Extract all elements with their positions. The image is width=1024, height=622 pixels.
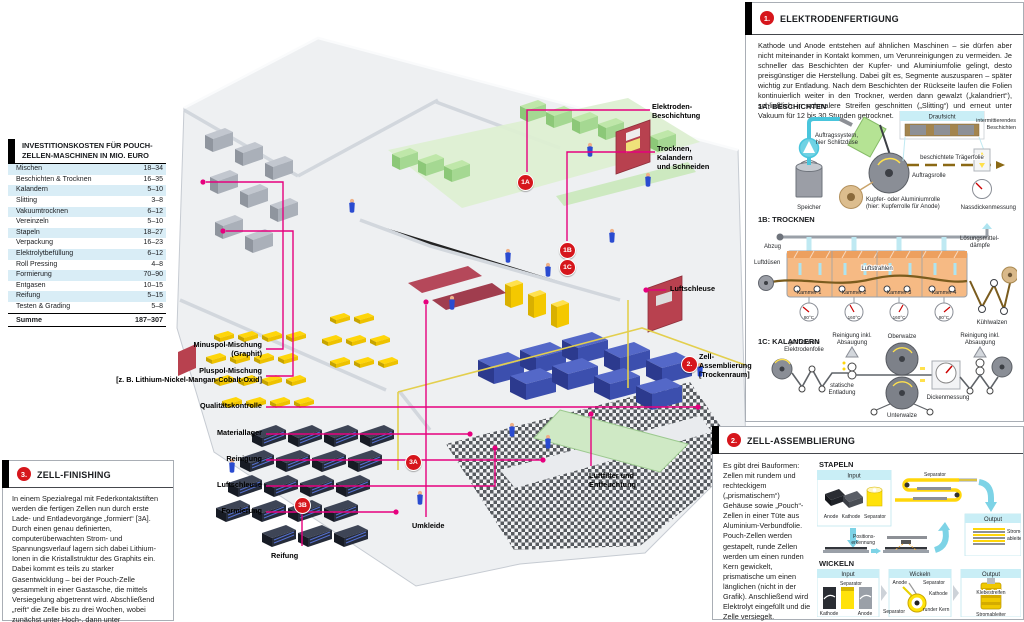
label-wickeln-separator-2: Separator [883, 609, 905, 615]
panel3-title: ZELL-FINISHING [37, 470, 111, 480]
label-reinigung-links-2: Absaugung [837, 340, 867, 346]
diagram-beschichten: Draufsicht intermittierendes Beschichten… [752, 111, 1017, 213]
label-wickeln-separator-1: Separator [923, 580, 945, 586]
label-temp-2: 160°C [848, 315, 862, 320]
label-nassdickenmessung: Nassdickenmessung [961, 205, 1016, 211]
label-positionserkennung-2: erkennung [851, 540, 875, 546]
label-formierung: Formierung [30, 507, 262, 516]
label-luftschleuse-links: Luftschleuse [30, 481, 262, 490]
table-body: Mischen18–34 Beschichten & Trocknen16–35… [8, 164, 166, 312]
label-pluspol-mischung: Pluspol-Mischung[z. B. Lithium-Nickel-Ma… [30, 367, 262, 385]
label-auftragssystem-1: Auftragssystem, [815, 133, 858, 139]
panel2-title: ZELL-ASSEMBLIERUNG [747, 436, 855, 446]
label-wickeln-anode: Anode [893, 580, 908, 586]
table-row: Reifung5–15 [8, 291, 166, 302]
label-runder-kern: runder Kern [923, 607, 950, 613]
panel1-number-badge: 1. [760, 11, 774, 25]
label-folie-2: Elektrodenfolie [784, 347, 824, 353]
section-1c-title: 1C: KALANDERN [758, 337, 820, 346]
label-traegerfolie: beschichtete Trägerfolie [920, 155, 984, 161]
table-row: Elektrolytbefüllung6–12 [8, 249, 166, 260]
table-row: Stapeln18–27 [8, 228, 166, 239]
table-row: Verpackung16–23 [8, 238, 166, 249]
diagram-stapeln: Input Anode Kathode Separator Separator … [817, 470, 1021, 556]
label-reinigung-links-1: Reinigung inkl. [832, 333, 872, 339]
label-kammer-3: Kammer 3 [887, 290, 912, 296]
label-intermittierend-2: Beschichten [987, 125, 1016, 131]
label-draufsicht: Draufsicht [928, 115, 955, 121]
panel3-number-badge: 3. [17, 467, 31, 481]
label-elektroden-beschichtung: Elektroden-Beschichtung [652, 102, 700, 120]
table-row: Vakuumtrocknen6–12 [8, 207, 166, 218]
investment-cost-table: INVESTITIONSKOSTEN FÜR POUCH- ZELLEN-MAS… [8, 139, 166, 327]
label-w-stromableiter: Stromableiter [976, 612, 1006, 617]
header-bar [2, 460, 9, 488]
label-kammer-4: Kammer 4 [932, 290, 957, 296]
label-stapeln-input: Input [847, 474, 861, 480]
panel-elektrodenfertigung: 1. ELEKTRODENFERTIGUNG Kathode und Anode… [745, 2, 1024, 422]
label-auftragssystem-2: hier Schlitzdüse [816, 140, 859, 146]
label-luftduesen: Luftdüsen [754, 260, 780, 266]
label-luftfilter: Luftfilter undEntfeuchtung [589, 471, 636, 489]
section-1a-title: 1A: BESCHICHTEN [758, 102, 826, 111]
table-row: Testen & Grading5–8 [8, 302, 166, 313]
label-materiallager: Materiallager [30, 429, 262, 438]
panel2-number-badge: 2. [727, 433, 741, 447]
marker-1b: 1B [559, 242, 576, 259]
wickeln-title: WICKELN [819, 559, 854, 568]
marker-1c: 1C [559, 259, 576, 276]
label-wickeln-input: Input [841, 572, 855, 578]
section-1b-title: 1B: TROCKNEN [758, 215, 815, 224]
panel1-title: ELEKTRODENFERTIGUNG [780, 14, 899, 24]
marker-1a: 1A [517, 174, 534, 191]
label-wickeln-kathode: Kathode [929, 591, 948, 597]
label-umkleide: Umkleide [412, 521, 444, 530]
label-kammer-1: Kammer 1 [797, 290, 822, 296]
label-auftragsrolle: Auftragsrolle [912, 173, 946, 179]
label-temp-3: 160°C [893, 315, 907, 320]
label-qualitaetskontrolle: Qualitätskontrolle [30, 402, 262, 411]
label-reifung: Reifung [271, 551, 298, 560]
label-kammer-2: Kammer 2 [842, 290, 867, 296]
panel2-body-text: Es gibt drei Bauformen: Zellen mit runde… [723, 461, 811, 622]
stapeln-title: STAPELN [819, 460, 853, 469]
label-temp-1: 80°C [804, 315, 815, 320]
label-oberwalze: Oberwalze [888, 334, 917, 340]
marker-3a: 3A [405, 454, 422, 471]
label-loesungsmittel-1: Lösungsmittel- [960, 236, 999, 242]
panel2-header: 2. ZELL-ASSEMBLIERUNG [713, 427, 1023, 454]
label-unterwalze: Unterwalze [887, 413, 918, 419]
label-luftstrahlen: Luftstrahlen [861, 266, 892, 272]
label-w-separator-top: Separator [840, 581, 862, 587]
diagram-wickeln: Input Separator Kathode Anode Wickeln An… [817, 569, 1021, 617]
label-rolle-1: Kupfer- oder Aluminiumrolle [866, 197, 941, 203]
label-rolle-2: (hier: Kupferrolle für Anode) [866, 204, 940, 210]
label-kuehlwalzen: Kühlwalzen [977, 320, 1008, 326]
label-statisch-1: statische [830, 383, 854, 389]
panel-zell-assemblierung: 2. ZELL-ASSEMBLIERUNG Es gibt drei Baufo… [712, 426, 1024, 620]
table-row: Roll Pressing4–8 [8, 260, 166, 271]
label-stromableiter-1: Strom- [1007, 529, 1021, 535]
label-luftschleuse-rechts: Luftschleuse [670, 284, 715, 293]
label-abzug: Abzug [764, 244, 781, 250]
label-kathode: Kathode [842, 514, 861, 520]
table-title: INVESTITIONSKOSTEN FÜR POUCH- ZELLEN-MAS… [8, 139, 166, 164]
header-bar [712, 426, 719, 454]
panel1-header: 1. ELEKTRODENFERTIGUNG [746, 3, 1023, 35]
label-anode: Anode [824, 514, 839, 520]
label-stromableiter-2: ableiter [1007, 536, 1021, 542]
table-row: Entgasen10–15 [8, 281, 166, 292]
label-wickeln-header: Wickeln [909, 572, 930, 578]
label-w-anode: Anode [858, 611, 873, 617]
label-zell-assemblierung: Zell-Assemblierung[Trockenraum] [699, 352, 752, 379]
marker-3b: 3B [294, 497, 311, 514]
label-temp-4: 80°C [939, 315, 950, 320]
table-row: Slitting3–8 [8, 196, 166, 207]
label-w-kathode: Kathode [820, 611, 839, 617]
label-separator: Separator [864, 514, 886, 520]
table-row: Beschichten & Trocknen16–35 [8, 175, 166, 186]
header-bar [745, 2, 752, 35]
label-speicher: Speicher [797, 205, 821, 211]
label-reinigung-rechts-1: Reinigung inkl. [960, 333, 1000, 339]
label-intermittierend-1: intermittierendes [976, 118, 1016, 124]
table-row: Kalandern5–10 [8, 185, 166, 196]
label-wickeln-output: Output [982, 572, 1000, 578]
label-klebestreifen: Klebestreifen [976, 590, 1005, 596]
infographic-canvas: INVESTITIONSKOSTEN FÜR POUCH- ZELLEN-MAS… [0, 0, 1024, 622]
table-sum-row: Summe187–307 [8, 313, 166, 327]
label-reinigung: Reinigung [30, 455, 262, 464]
label-trocknen-kalandern: Trocknen,Kalandernund Schneiden [657, 144, 709, 171]
table-row: Mischen18–34 [8, 164, 166, 175]
label-reinigung-rechts-2: Absaugung [965, 340, 995, 346]
label-stapeln-output: Output [984, 517, 1002, 523]
label-separator-fold: Separator [924, 472, 946, 478]
marker-2: 2. [681, 356, 698, 373]
table-row: Vereinzeln5–10 [8, 217, 166, 228]
diagram-trocknen: Abzug Luftdüsen Luftstrahlen Lösungsmitt… [752, 223, 1017, 327]
label-minuspol-mischung: Minuspol-Mischung(Graphit) [30, 341, 262, 359]
table-row: Formierung70–90 [8, 270, 166, 281]
label-dickenmessung: Dickenmessung [927, 395, 970, 401]
label-statisch-2: Entladung [828, 390, 855, 396]
label-loesungsmittel-2: dämpfe [970, 243, 991, 249]
